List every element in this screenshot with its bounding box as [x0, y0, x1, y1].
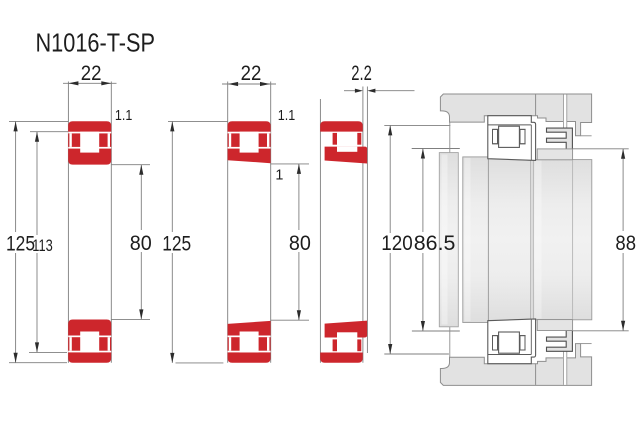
svg-text:1.1: 1.1 — [115, 107, 132, 124]
svg-text:2.2: 2.2 — [351, 62, 372, 85]
svg-text:N1016-T-SP: N1016-T-SP — [36, 27, 156, 57]
svg-text:120: 120 — [381, 232, 412, 255]
svg-text:80: 80 — [130, 232, 152, 255]
svg-text:1.1: 1.1 — [278, 107, 295, 124]
svg-text:113: 113 — [32, 236, 53, 255]
svg-text:88: 88 — [615, 232, 636, 255]
svg-text:80: 80 — [289, 232, 311, 255]
svg-text:22: 22 — [81, 62, 102, 85]
svg-text:125: 125 — [6, 233, 35, 256]
svg-text:125: 125 — [162, 233, 191, 256]
svg-text:22: 22 — [241, 62, 262, 85]
svg-text:1: 1 — [275, 167, 283, 184]
svg-text:86.5: 86.5 — [414, 232, 456, 255]
